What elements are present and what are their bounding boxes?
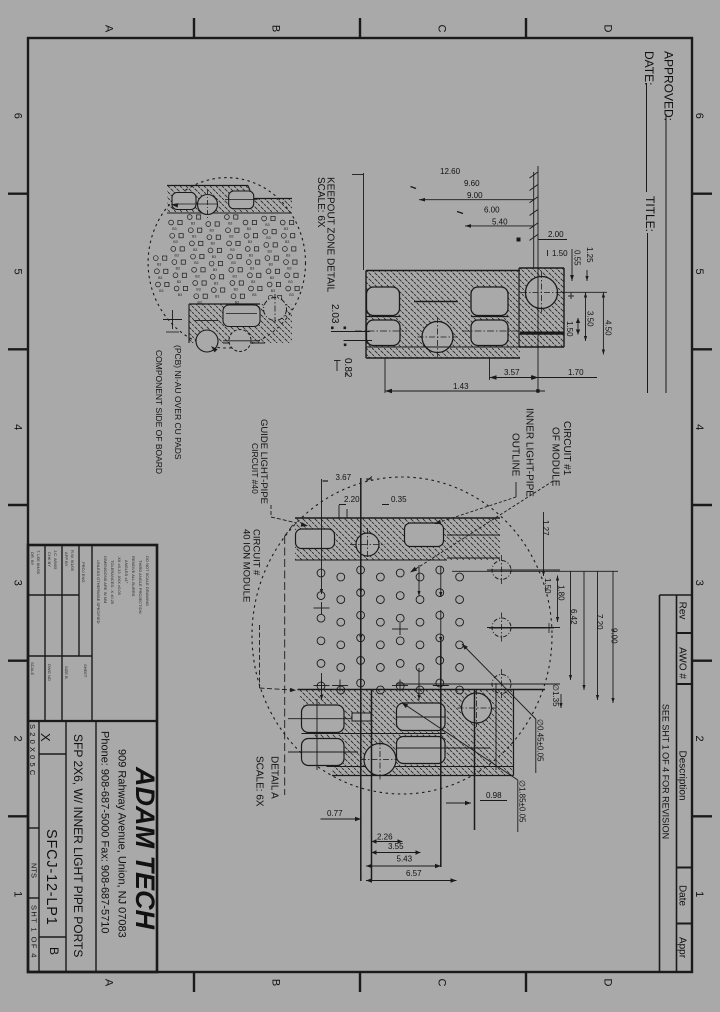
svg-text:4: 4 xyxy=(693,424,705,430)
svg-text:B3: B3 xyxy=(250,267,254,271)
svg-text:TOLERANCES: .X ±0.25: TOLERANCES: .X ±0.25 xyxy=(110,560,115,605)
svg-text:7.20: 7.20 xyxy=(595,614,604,630)
svg-text:B3: B3 xyxy=(215,295,219,299)
svg-text:1.50: 1.50 xyxy=(552,249,568,258)
svg-text:D: D xyxy=(602,25,614,33)
svg-text:909 Rahway Avenue, Union, NJ 0: 909 Rahway Avenue, Union, NJ 07083 xyxy=(116,749,128,938)
svg-text:0.55: 0.55 xyxy=(573,250,582,266)
svg-text:APPROVED:: APPROVED: xyxy=(662,51,676,121)
svg-text:1: 1 xyxy=(693,891,705,897)
svg-text:B3: B3 xyxy=(211,242,215,246)
svg-text:COMPONENT SIDE OF BOARD: COMPONENT SIDE OF BOARD xyxy=(154,350,164,474)
svg-text:AWO #: AWO # xyxy=(677,647,688,679)
svg-text:9.00: 9.00 xyxy=(467,191,483,200)
svg-text:DWG NO: DWG NO xyxy=(47,664,52,681)
svg-text:SCALE: 6X: SCALE: 6X xyxy=(315,177,326,228)
svg-text:B3: B3 xyxy=(158,276,162,280)
svg-text:1.80: 1.80 xyxy=(557,585,566,601)
svg-text:S20X05C: S20X05C xyxy=(28,724,37,779)
svg-text:0.35: 0.35 xyxy=(391,495,407,504)
svg-text:B3: B3 xyxy=(193,248,197,252)
svg-text:B3: B3 xyxy=(285,240,289,244)
svg-text:B3: B3 xyxy=(214,281,218,285)
svg-text:THIRD ANGLE PROJECTION: THIRD ANGLE PROJECTION xyxy=(138,560,143,614)
svg-text:SFCJ-12-LP1: SFCJ-12-LP1 xyxy=(43,829,59,926)
svg-text:Rev: Rev xyxy=(677,602,688,620)
svg-text:D: D xyxy=(602,979,614,987)
svg-text:B3: B3 xyxy=(269,263,273,267)
svg-text:DO NOT SCALE DRAWING: DO NOT SCALE DRAWING xyxy=(145,556,150,606)
svg-text:B3: B3 xyxy=(284,227,288,231)
svg-text:B: B xyxy=(47,947,61,955)
svg-text:6.57: 6.57 xyxy=(406,869,422,878)
svg-text:SHEET: SHEET xyxy=(83,664,88,678)
svg-text:B3: B3 xyxy=(271,289,275,293)
svg-text:ANGLES ±1°: ANGLES ±1° xyxy=(124,560,129,584)
svg-text:Date: Date xyxy=(677,885,688,907)
svg-text:B3: B3 xyxy=(212,255,216,259)
svg-text:CIRCUIT #1: CIRCUIT #1 xyxy=(561,421,572,476)
svg-text:5.40: 5.40 xyxy=(492,218,508,227)
svg-text:B3: B3 xyxy=(248,240,252,244)
svg-text:INNER LIGHT-PIPE: INNER LIGHT-PIPE xyxy=(524,408,535,497)
svg-text:B3: B3 xyxy=(266,236,270,240)
svg-text:.XX ±0.13 .XXX ±0.05: .XX ±0.13 .XXX ±0.05 xyxy=(117,556,122,596)
svg-text:B3: B3 xyxy=(172,227,176,231)
svg-text:SHT 1 OF 4: SHT 1 OF 4 xyxy=(30,905,39,959)
svg-text:R.W. 9/1/05: R.W. 9/1/05 xyxy=(70,550,75,572)
svg-text:DETAIL A: DETAIL A xyxy=(269,756,280,799)
svg-text:B: B xyxy=(270,25,282,32)
svg-text:UNLESS OTHERWISE SPECIFIED: UNLESS OTHERWISE SPECIFIED xyxy=(96,560,101,624)
svg-text:1.25: 1.25 xyxy=(585,247,594,263)
svg-text:B3: B3 xyxy=(213,268,217,272)
svg-text:J.C. 8/9/05: J.C. 8/9/05 xyxy=(53,550,58,570)
svg-text:B3: B3 xyxy=(252,293,256,297)
svg-text:B3: B3 xyxy=(265,223,269,227)
svg-text:6: 6 xyxy=(693,113,705,119)
svg-text:3.67: 3.67 xyxy=(336,473,352,482)
svg-text:3.57: 3.57 xyxy=(504,368,520,377)
svg-text:B3: B3 xyxy=(210,229,214,233)
svg-text:OF MODULE: OF MODULE xyxy=(550,427,561,487)
svg-text:B3: B3 xyxy=(247,227,251,231)
svg-text:SIZE B: SIZE B xyxy=(64,666,69,679)
svg-text:SEE SHT 1 OF 4 FOR REVISION: SEE SHT 1 OF 4 FOR REVISION xyxy=(661,704,671,839)
svg-text:SCALE: SCALE xyxy=(30,662,35,675)
svg-text:C: C xyxy=(436,979,448,987)
svg-text:REMOVE ALL BURRS: REMOVE ALL BURRS xyxy=(131,556,136,597)
svg-text:B3: B3 xyxy=(233,274,237,278)
svg-text:0.82: 0.82 xyxy=(342,358,353,378)
svg-text:40 ION MODULE: 40 ION MODULE xyxy=(241,529,252,602)
svg-text:PROJ ENG: PROJ ENG xyxy=(81,562,86,582)
svg-text:2: 2 xyxy=(693,735,705,741)
svg-text:SCALE: 6X: SCALE: 6X xyxy=(254,756,265,807)
svg-text:DR. BY: DR. BY xyxy=(30,552,35,566)
svg-text:ADAM TECH: ADAM TECH xyxy=(130,766,160,929)
svg-text:6.42: 6.42 xyxy=(569,609,578,625)
svg-text:B3: B3 xyxy=(173,240,177,244)
svg-text:NTS: NTS xyxy=(30,863,39,878)
svg-text:APP BY: APP BY xyxy=(64,552,69,567)
svg-text:DATE:: DATE: xyxy=(642,51,656,85)
svg-text:1.50: 1.50 xyxy=(543,578,552,594)
svg-text:2.20: 2.20 xyxy=(344,495,360,504)
svg-text:B3: B3 xyxy=(159,289,163,293)
svg-text:B3: B3 xyxy=(196,288,200,292)
svg-text:2.03: 2.03 xyxy=(329,304,340,324)
svg-text:B3: B3 xyxy=(287,267,291,271)
svg-text:OUTLINE: OUTLINE xyxy=(510,433,521,477)
svg-text:DIMENSIONS ARE IN MM: DIMENSIONS ARE IN MM xyxy=(103,556,108,603)
svg-text:B3: B3 xyxy=(251,280,255,284)
svg-text:B3: B3 xyxy=(234,288,238,292)
svg-text:1.50: 1.50 xyxy=(565,321,574,337)
svg-text:C: C xyxy=(436,25,448,33)
svg-text:B3: B3 xyxy=(192,235,196,239)
svg-text:B3: B3 xyxy=(249,253,253,257)
svg-text:B3: B3 xyxy=(288,280,292,284)
svg-text:CHK BY: CHK BY xyxy=(47,552,52,567)
svg-text:Phone: 908-687-5000 Fax: 908-6: Phone: 908-687-5000 Fax: 908-687-5710 xyxy=(99,731,111,933)
svg-text:1.43: 1.43 xyxy=(453,382,469,391)
svg-text:3.55: 3.55 xyxy=(388,842,404,851)
svg-text:2.26: 2.26 xyxy=(377,833,393,842)
svg-text:9.00: 9.00 xyxy=(610,628,619,644)
svg-text:B3: B3 xyxy=(176,267,180,271)
svg-text:CIRCUIT #40: CIRCUIT #40 xyxy=(250,443,260,494)
svg-text:5: 5 xyxy=(12,268,24,274)
svg-text:B3: B3 xyxy=(230,248,234,252)
svg-text:T. LEE 8/4/05: T. LEE 8/4/05 xyxy=(36,550,41,575)
svg-text:B3: B3 xyxy=(231,261,235,265)
svg-text:A: A xyxy=(103,979,115,987)
svg-text:B3: B3 xyxy=(191,222,195,226)
svg-text:5: 5 xyxy=(693,268,705,274)
svg-text:A: A xyxy=(103,25,115,33)
svg-text:6.00: 6.00 xyxy=(484,206,500,215)
svg-text:9.60: 9.60 xyxy=(464,179,480,188)
svg-text:SFP 2X6, W/ INNER LIGHT PIPE P: SFP 2X6, W/ INNER LIGHT PIPE PORTS xyxy=(71,734,85,957)
svg-text:2.00: 2.00 xyxy=(548,230,564,239)
svg-text:B3: B3 xyxy=(178,293,182,297)
svg-text:B3: B3 xyxy=(286,253,290,257)
svg-text:0.98: 0.98 xyxy=(486,791,502,800)
svg-text:B3: B3 xyxy=(228,222,232,226)
svg-text:TITLE:: TITLE: xyxy=(643,196,657,232)
svg-text:0.77: 0.77 xyxy=(327,809,343,818)
svg-text:4.50: 4.50 xyxy=(604,320,613,336)
svg-text:1: 1 xyxy=(12,891,24,897)
svg-text:2: 2 xyxy=(12,735,24,741)
svg-text:(PCB) NI-AU OVER CU PADS: (PCB) NI-AU OVER CU PADS xyxy=(173,345,183,460)
svg-text:4: 4 xyxy=(12,424,24,430)
svg-text:5.43: 5.43 xyxy=(397,855,413,864)
svg-text:3.50: 3.50 xyxy=(586,311,595,327)
svg-text:B3: B3 xyxy=(195,274,199,278)
svg-text:B3: B3 xyxy=(175,253,179,257)
svg-text:6: 6 xyxy=(12,113,24,119)
svg-text:1.27: 1.27 xyxy=(541,520,550,536)
svg-text:12.60: 12.60 xyxy=(440,167,461,176)
svg-text:∅1.35: ∅1.35 xyxy=(551,684,560,707)
svg-text:3: 3 xyxy=(12,580,24,586)
svg-text:3: 3 xyxy=(693,580,705,586)
svg-text:B3: B3 xyxy=(270,276,274,280)
svg-text:Appr: Appr xyxy=(677,937,688,959)
svg-text:B3: B3 xyxy=(177,280,181,284)
svg-text:Description: Description xyxy=(677,750,688,800)
svg-text:B3: B3 xyxy=(289,293,293,297)
svg-text:B: B xyxy=(270,979,282,986)
svg-text:B3: B3 xyxy=(268,249,272,253)
svg-text:∅0.45±0.05: ∅0.45±0.05 xyxy=(536,719,545,762)
svg-text:X: X xyxy=(38,733,53,742)
svg-text:1.70: 1.70 xyxy=(568,368,584,377)
svg-text:B3: B3 xyxy=(194,261,198,265)
svg-text:B3: B3 xyxy=(229,235,233,239)
svg-text:B3: B3 xyxy=(157,263,161,267)
svg-text:∅1.85±0.05: ∅1.85±0.05 xyxy=(518,780,527,823)
